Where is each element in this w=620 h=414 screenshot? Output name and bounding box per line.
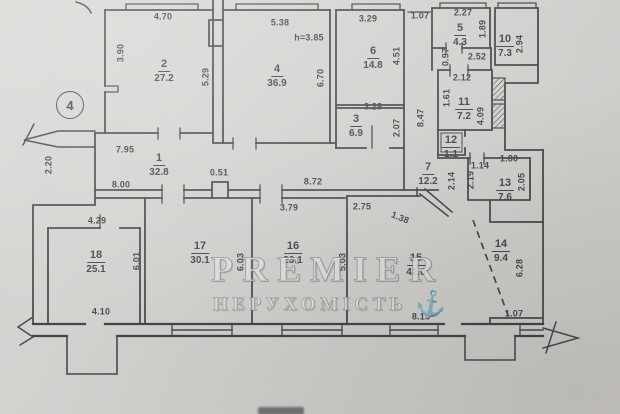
room-area: 23.1 xyxy=(283,256,302,266)
dimension-label: 2.94 xyxy=(516,35,525,53)
dimension-label: 4.09 xyxy=(477,107,486,125)
room-area: 1.1 xyxy=(442,150,460,160)
room-label-14: 149.4 xyxy=(492,235,510,264)
dimension-label: 6.28 xyxy=(516,259,525,277)
room-area: 4.3 xyxy=(453,38,467,48)
dimension-label: 1.07 xyxy=(505,310,523,319)
scan-artifact xyxy=(258,407,304,414)
dimension-label: 6.01 xyxy=(133,252,142,270)
dimension-label: 2.12 xyxy=(453,74,471,83)
room-label-15: 1542.0 xyxy=(406,249,425,278)
dimension-label: h=3.85 xyxy=(294,34,323,43)
room-number: 11 xyxy=(455,97,473,110)
dimension-label: 3.79 xyxy=(280,204,298,213)
room-label-11: 117.2 xyxy=(455,93,473,122)
room-number: 6 xyxy=(367,46,379,59)
dimension-label: 8.72 xyxy=(304,178,322,187)
dimension-label: 2.05 xyxy=(518,173,527,191)
room-label-17: 1730.1 xyxy=(190,237,209,266)
room-label-2: 227.2 xyxy=(154,55,173,84)
dimension-label: 1.80 xyxy=(500,155,518,164)
section-number: 4 xyxy=(66,98,73,113)
dimension-label: 6.70 xyxy=(317,69,326,87)
room-area: 9.4 xyxy=(492,254,510,264)
room-number: 13 xyxy=(496,178,514,191)
room-label-6: 614.8 xyxy=(363,42,382,71)
room-area: 7.6 xyxy=(496,193,514,203)
dimension-label: 3.90 xyxy=(117,44,126,62)
dimension-label: 2.07 xyxy=(393,119,402,137)
room-number: 3 xyxy=(350,114,362,127)
room-area: 42.0 xyxy=(406,268,425,278)
dimension-label: 1.07 xyxy=(411,12,429,21)
room-label-13: 137.6 xyxy=(496,174,514,203)
room-area: 36.9 xyxy=(267,79,286,89)
room-label-7: 712.2 xyxy=(418,158,437,187)
dimension-label: 2.52 xyxy=(468,53,486,62)
room-area: 30.1 xyxy=(190,256,209,266)
dimension-label: 1.14 xyxy=(471,162,489,171)
room-number: 5 xyxy=(454,23,466,36)
room-number: 2 xyxy=(158,59,170,72)
room-label-16: 1623.1 xyxy=(283,237,302,266)
section-marker: 4 xyxy=(56,91,84,119)
room-number: 12 xyxy=(442,135,460,148)
dimension-label: 0.51 xyxy=(210,169,228,178)
room-label-1: 132.8 xyxy=(149,149,168,178)
dimension-label: 4.51 xyxy=(393,47,402,65)
room-area: 25.1 xyxy=(86,265,105,275)
dimension-label: 8.47 xyxy=(417,109,426,127)
room-label-12: 121.1 xyxy=(442,131,460,160)
room-area: 6.9 xyxy=(349,129,363,139)
dimension-label: 5.03 xyxy=(339,253,348,271)
room-area: 12.2 xyxy=(418,177,437,187)
room-number: 15 xyxy=(407,253,425,266)
dimension-label: 4.70 xyxy=(154,13,172,22)
room-number: 14 xyxy=(492,239,510,252)
room-area: 7.2 xyxy=(455,112,473,122)
dimension-label: 3.28 xyxy=(364,103,382,112)
room-area: 27.2 xyxy=(154,74,173,84)
labels-layer: 132.8227.236.9436.954.3614.8712.2107.311… xyxy=(0,0,620,414)
dimension-label: 4.10 xyxy=(92,308,110,317)
dimension-label: 2.19 xyxy=(467,171,476,189)
dimension-label: 1.38 xyxy=(390,210,410,225)
dimension-label: 5.29 xyxy=(202,68,211,86)
room-number: 10 xyxy=(496,34,514,47)
floorplan-scan: 132.8227.236.9436.954.3614.8712.2107.311… xyxy=(0,0,620,414)
room-number: 18 xyxy=(87,250,105,263)
room-label-10: 107.3 xyxy=(496,30,514,59)
room-area: 14.8 xyxy=(363,61,382,71)
dimension-label: 2.14 xyxy=(448,172,457,190)
room-number: 1 xyxy=(153,153,165,166)
dimension-label: 2.75 xyxy=(353,203,371,212)
room-number: 7 xyxy=(422,162,434,175)
room-label-4: 436.9 xyxy=(267,60,286,89)
dimension-label: 6.03 xyxy=(237,253,246,271)
dimension-label: 1.89 xyxy=(479,20,488,38)
dimension-label: 2.27 xyxy=(454,9,472,18)
dimension-label: 8.00 xyxy=(112,181,130,190)
room-label-5: 54.3 xyxy=(453,19,467,48)
room-number: 4 xyxy=(271,64,283,77)
room-number: 17 xyxy=(191,241,209,254)
room-area: 7.3 xyxy=(496,49,514,59)
dimension-label: 3.29 xyxy=(359,15,377,24)
dimension-label: 1.61 xyxy=(443,89,452,107)
dimension-label: 8.15 xyxy=(412,313,430,322)
dimension-label: 7.95 xyxy=(116,146,134,155)
dimension-label: 4.29 xyxy=(88,217,106,226)
dimension-label: 0.97 xyxy=(442,48,451,66)
room-label-18: 1825.1 xyxy=(86,246,105,275)
room-area: 32.8 xyxy=(149,168,168,178)
room-label-3: 36.9 xyxy=(349,110,363,139)
room-number: 16 xyxy=(284,241,302,254)
dimension-label: 2.20 xyxy=(45,156,54,174)
dimension-label: 5.38 xyxy=(271,19,289,28)
